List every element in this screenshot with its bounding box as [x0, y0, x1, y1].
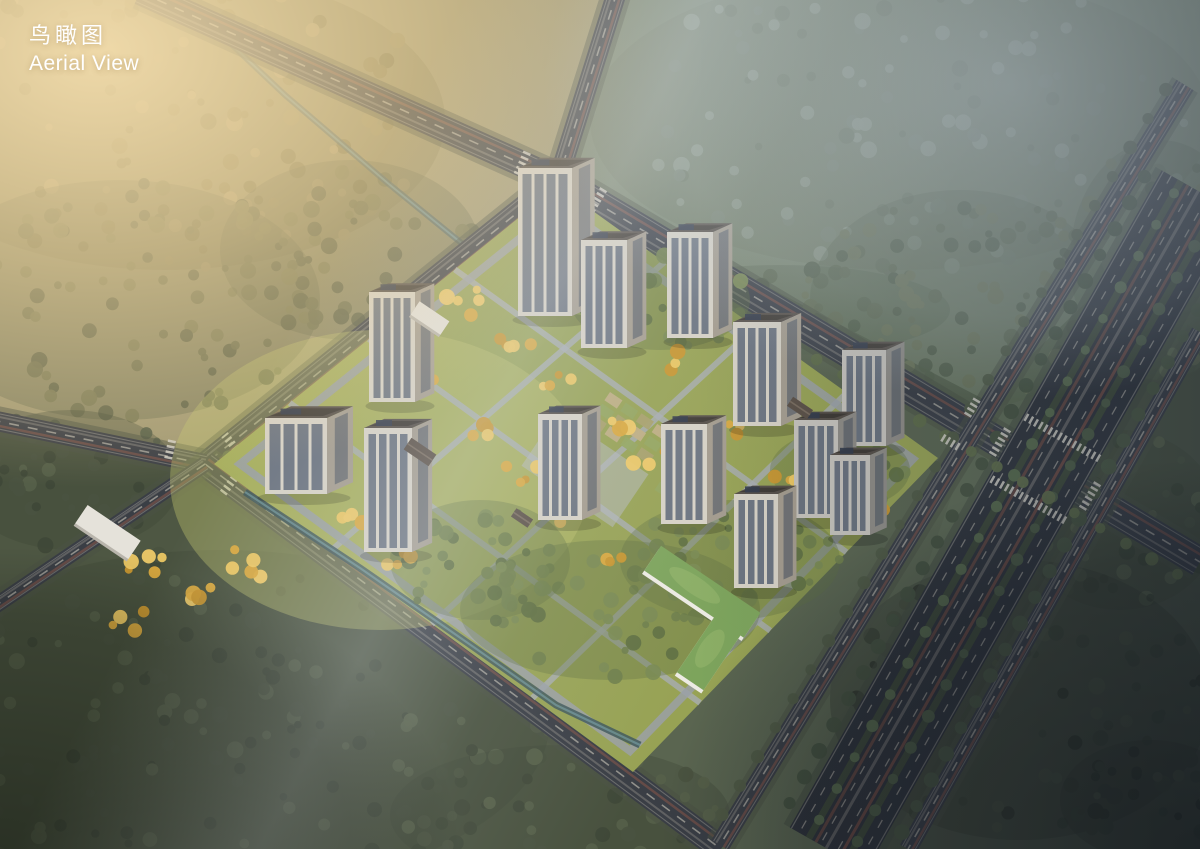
tree [867, 303, 883, 319]
tree [197, 98, 204, 105]
tree [262, 731, 271, 740]
tree [227, 107, 242, 122]
street-tree [938, 595, 949, 606]
tree [860, 141, 877, 158]
tree [733, 273, 748, 288]
rooftop-solar-panel [281, 409, 302, 415]
street-tree [797, 770, 812, 785]
tree [125, 190, 138, 203]
tree [1159, 807, 1168, 816]
gold-tree [464, 308, 478, 322]
tree [308, 310, 323, 325]
gold-tree [230, 545, 239, 554]
tree [387, 247, 402, 262]
tree [836, 250, 848, 262]
tree [245, 737, 257, 749]
tree [1119, 631, 1133, 645]
tree [208, 367, 216, 375]
tree [287, 725, 296, 734]
tree [229, 603, 242, 616]
tree [327, 781, 339, 793]
tree [338, 699, 349, 710]
tree [755, 143, 762, 150]
rooftop-solar-panel [853, 342, 868, 348]
tree [281, 268, 298, 285]
tree [63, 202, 73, 212]
tree [481, 567, 493, 579]
street-tree [1036, 287, 1047, 298]
street-tree [912, 490, 923, 501]
tree [992, 801, 1004, 813]
tree [825, 199, 834, 208]
tree [1139, 74, 1147, 82]
tree [54, 819, 66, 831]
tree [356, 673, 365, 682]
tree [1116, 564, 1131, 579]
tree [88, 459, 101, 472]
rooftop-solar-panel [549, 406, 564, 412]
tree [21, 470, 28, 477]
tree [912, 340, 923, 351]
street-tree [976, 617, 987, 628]
street-tree [938, 746, 954, 762]
tree [272, 653, 285, 666]
street-tree [1117, 365, 1130, 378]
street-tree [858, 576, 871, 589]
street-tree [866, 720, 878, 732]
tree [1028, 152, 1042, 166]
tree [200, 113, 216, 129]
tree [417, 815, 431, 829]
tree [735, 30, 743, 38]
street-tree [885, 689, 896, 700]
tree [1096, 83, 1106, 93]
tree [936, 224, 945, 233]
tree [21, 794, 34, 807]
tree [488, 537, 496, 545]
tree [18, 223, 34, 239]
tree [371, 124, 383, 136]
tree [666, 647, 679, 660]
tree [204, 817, 217, 830]
street-tree [703, 809, 716, 822]
gold-tree [545, 380, 556, 391]
tree [1039, 769, 1053, 783]
tree [130, 221, 138, 229]
tree [371, 202, 380, 211]
street-tree [1120, 538, 1132, 550]
residential-tower [731, 486, 797, 599]
tree [642, 621, 649, 628]
street-tree [1026, 438, 1038, 450]
rooftop-solar-panel [593, 232, 608, 238]
tree [321, 238, 338, 255]
tree [345, 211, 354, 220]
tree [281, 315, 297, 331]
street-tree [1159, 83, 1173, 97]
tree [711, 210, 725, 224]
tree [587, 554, 601, 568]
tree [800, 177, 810, 187]
tree [55, 640, 62, 647]
tree [169, 575, 181, 587]
street-tree [826, 717, 841, 732]
tree [514, 580, 524, 590]
tree [705, 111, 714, 120]
street-tree [1069, 508, 1080, 519]
tree [380, 272, 393, 285]
tree [316, 721, 325, 730]
tree [154, 54, 163, 63]
tree [212, 648, 227, 663]
street-tree [1011, 553, 1024, 566]
street-tree [913, 414, 926, 427]
gold-tree [626, 455, 641, 470]
tree [1127, 654, 1140, 667]
tree [457, 717, 466, 726]
tree [196, 698, 207, 709]
gold-tree [516, 478, 525, 487]
tree [1053, 72, 1061, 80]
street-tree [716, 808, 729, 821]
tree [858, 79, 866, 87]
tree [968, 95, 981, 108]
street-tree [1177, 330, 1189, 342]
street-tree [998, 643, 1012, 657]
tree [139, 674, 150, 685]
tree [454, 768, 465, 779]
street-tree [1045, 408, 1054, 417]
tree [281, 149, 296, 164]
tree [652, 159, 664, 171]
rooftop-solar-panel [532, 159, 550, 165]
tree [255, 646, 267, 658]
street-tree [1116, 433, 1130, 447]
tree [89, 752, 98, 761]
street-tree [1095, 523, 1105, 533]
street-tree [1065, 460, 1076, 471]
tree [44, 208, 59, 223]
residential-tower [535, 406, 601, 531]
tree [369, 659, 382, 672]
tree [935, 26, 950, 41]
tree [90, 611, 101, 622]
title-english: Aerial View [29, 50, 139, 77]
tree [333, 309, 349, 325]
tree [532, 652, 546, 666]
tree [240, 263, 256, 279]
street-tree [1043, 564, 1057, 578]
tree [354, 201, 369, 216]
gold-tree [525, 338, 537, 350]
tree [288, 659, 301, 672]
tree [835, 555, 844, 564]
tree [1088, 678, 1105, 695]
tree [309, 665, 322, 678]
tree [390, 217, 403, 230]
tree [927, 345, 937, 355]
tree [478, 513, 493, 528]
tree [1171, 483, 1184, 496]
tree [42, 463, 56, 477]
tree [37, 537, 53, 553]
gold-tree [467, 430, 478, 441]
street-tree [887, 614, 900, 627]
tree [917, 301, 925, 309]
gold-tree [565, 373, 576, 384]
tree [198, 348, 206, 356]
tree [146, 763, 158, 775]
tree [957, 201, 971, 215]
tree [1131, 767, 1142, 778]
gold-tree [142, 549, 156, 563]
tree [608, 626, 622, 640]
tree [332, 281, 344, 293]
tree [1021, 41, 1036, 56]
tree [1120, 715, 1133, 728]
tree [30, 288, 45, 303]
tree [128, 339, 140, 351]
street-tree [822, 634, 835, 647]
street-tree [900, 587, 915, 602]
tree [178, 37, 189, 48]
tree [1174, 812, 1182, 820]
tree [239, 839, 249, 849]
tree [985, 230, 992, 237]
tree [1057, 688, 1068, 699]
tree [952, 60, 968, 76]
street-tree [974, 533, 984, 543]
street-tree [1145, 552, 1158, 565]
street-tree [1063, 376, 1073, 386]
gold-tree [482, 429, 494, 441]
tree [231, 341, 240, 350]
street-tree [956, 564, 967, 575]
tree [806, 578, 814, 586]
tree [421, 777, 434, 790]
tree [123, 279, 135, 291]
tree [290, 748, 300, 758]
gold-tree [128, 623, 142, 637]
street-tree [1151, 220, 1161, 230]
tree [847, 246, 861, 260]
tree [1093, 792, 1100, 799]
tree [241, 285, 257, 301]
tree [307, 222, 321, 236]
street-tree [902, 658, 913, 669]
tree [645, 664, 661, 680]
tree [607, 669, 622, 684]
tree [1173, 770, 1185, 782]
tree [626, 635, 642, 651]
tree [1015, 221, 1026, 232]
tree [413, 597, 421, 605]
tree [112, 682, 124, 694]
tree [136, 100, 149, 113]
tree [209, 750, 224, 765]
gold-tree [768, 470, 782, 484]
street-tree [832, 783, 843, 794]
tree [715, 5, 724, 14]
residential-tower [366, 283, 435, 413]
tree [266, 670, 281, 685]
tree [852, 118, 864, 130]
tree [968, 240, 981, 253]
tree [595, 827, 610, 842]
gold-tree [605, 557, 615, 567]
tree [99, 277, 108, 286]
tree [599, 662, 609, 672]
tree [876, 0, 892, 16]
tree [954, 83, 962, 91]
street-tree [811, 743, 827, 759]
tree [507, 602, 517, 612]
tree [413, 587, 425, 599]
tree [244, 612, 261, 629]
tree [854, 13, 870, 29]
tree [622, 647, 629, 654]
tree [752, 23, 763, 34]
tree [810, 3, 821, 14]
gold-tree [343, 514, 351, 522]
tree [66, 749, 80, 763]
street-tree [969, 695, 982, 708]
tree [885, 64, 894, 73]
tree [511, 616, 519, 624]
tree [1054, 199, 1062, 207]
street-tree [1123, 141, 1137, 155]
tree [659, 304, 667, 312]
tree [212, 706, 229, 723]
tree [379, 210, 390, 221]
tree [732, 199, 742, 209]
tree [30, 453, 37, 460]
tree [1058, 230, 1069, 241]
street-tree [1133, 251, 1143, 261]
tree [106, 233, 116, 243]
tree [899, 286, 915, 302]
tree [753, 6, 762, 15]
tree [121, 826, 134, 839]
tree [266, 99, 274, 107]
tree [955, 114, 971, 130]
tree [1174, 634, 1186, 646]
tree [112, 138, 128, 154]
street-tree [1082, 428, 1095, 441]
tree [444, 560, 454, 570]
tree [1132, 682, 1141, 691]
tree [821, 227, 837, 243]
tree [447, 811, 457, 821]
tree [211, 329, 224, 342]
tree [271, 261, 281, 271]
gold-tree [206, 583, 216, 593]
tree [715, 535, 730, 550]
tree [483, 797, 495, 809]
street-tree [1107, 221, 1122, 236]
tree [1039, 730, 1047, 738]
street-tree [1107, 171, 1118, 182]
street-tree [1030, 523, 1040, 533]
tree [967, 345, 976, 354]
street-tree [656, 774, 666, 784]
tree [955, 311, 969, 325]
tree [42, 371, 52, 381]
tree [161, 738, 175, 752]
tree [373, 64, 387, 78]
tree [103, 634, 115, 646]
tree [1153, 772, 1163, 782]
street-tree [1012, 616, 1028, 632]
tree [27, 637, 37, 647]
tree [199, 727, 207, 735]
tree [1068, 735, 1083, 750]
tree [307, 737, 319, 749]
tree [105, 85, 116, 96]
tree [524, 801, 534, 811]
tree [1128, 746, 1139, 757]
tree [741, 226, 753, 238]
tree [1034, 206, 1041, 213]
tree [118, 650, 133, 665]
street-tree [1138, 170, 1152, 184]
street-tree [770, 722, 781, 733]
street-tree [1018, 316, 1029, 327]
tree [1008, 40, 1023, 55]
tree [498, 532, 512, 546]
tree [839, 128, 855, 144]
tree [1075, 174, 1087, 186]
tree [62, 493, 70, 501]
tree [1184, 517, 1195, 528]
tree [318, 262, 330, 274]
tree [88, 494, 99, 505]
tree [223, 154, 239, 170]
street-tree [905, 741, 917, 753]
tree [392, 759, 405, 772]
street-tree [850, 752, 860, 762]
street-tree [1042, 491, 1056, 505]
tree [91, 829, 99, 837]
tree [1030, 31, 1038, 39]
street-tree [920, 626, 932, 638]
tree [939, 363, 953, 377]
tree [804, 262, 821, 279]
gold-tree [138, 606, 150, 618]
tree [1087, 803, 1103, 819]
street-tree [975, 457, 988, 470]
tree [513, 800, 525, 812]
tree [111, 9, 125, 23]
tree [980, 30, 988, 38]
tree [191, 290, 205, 304]
street-tree [1153, 303, 1166, 316]
tree [1177, 456, 1185, 464]
tree [1054, 157, 1069, 172]
street-tree [1131, 407, 1145, 421]
tree [909, 324, 921, 336]
street-tree [982, 374, 994, 386]
gold-tree [501, 461, 512, 472]
street-tree [1063, 300, 1077, 314]
tree [1039, 222, 1055, 238]
tree [691, 144, 703, 156]
tree [985, 237, 1000, 252]
tree [1046, 92, 1059, 105]
rooftop-solar-panel [376, 420, 392, 426]
tree [283, 110, 299, 126]
tree [22, 763, 35, 776]
